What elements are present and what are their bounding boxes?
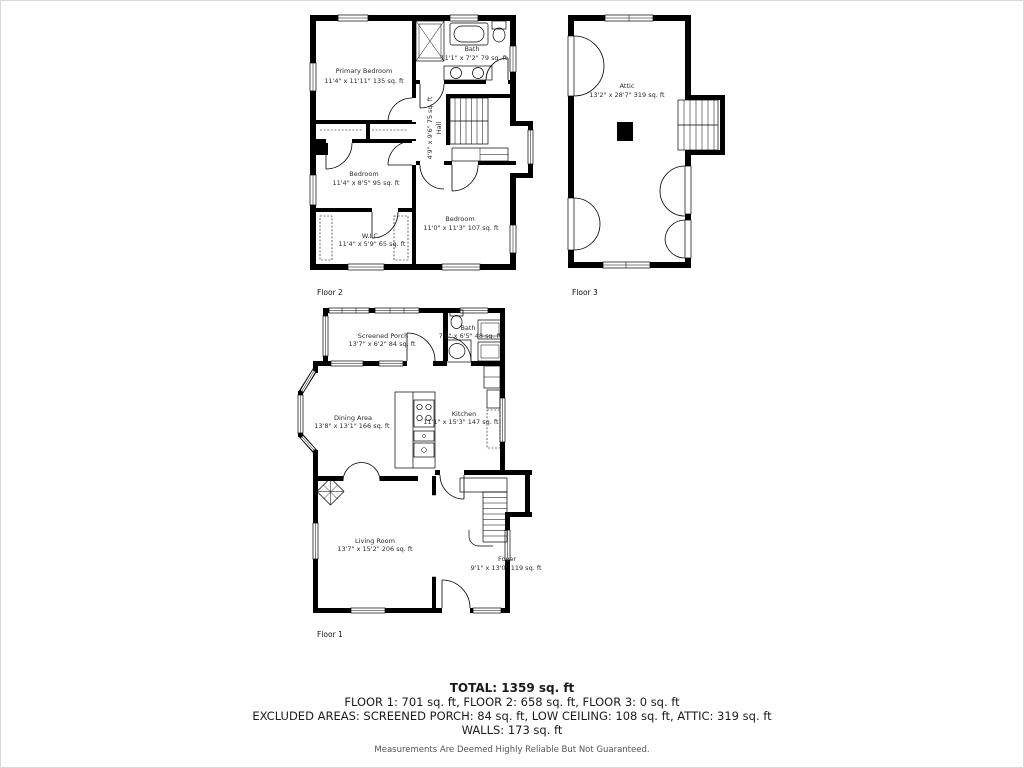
floor-2-plan: Primary Bedroom 11'4" x 11'11" 135 sq. f… [300,10,540,306]
room-label-f3-attic-dims: 13'2" x 28'7" 319 sq. ft [589,91,665,99]
room-label-f1-foyer-name: Foyer [498,555,516,563]
room-label-f2-bedroom-right-dims: 11'0" x 11'3" 107 sq. ft [423,224,499,232]
summary-block: TOTAL: 1359 sq. ft FLOOR 1: 701 sq. ft, … [0,681,1024,755]
floor3-stairs [678,100,718,150]
room-label-f1-porch-name: Screened Porch [358,332,408,340]
floor3-storage-doors [568,36,691,258]
room-label-f2-bedroom-left-name: Bedroom [349,170,378,178]
room-label-f2-primary-name: Primary Bedroom [336,67,393,75]
room-label-f1-kitchen-name: Kitchen [452,410,476,418]
room-label-f1-dining-name: Dining Area [334,414,372,422]
walls-area-text: WALLS: 173 sq. ft [0,723,1024,737]
floor-2-label: Floor 2 [317,288,343,297]
floor-1-plan: Screened Porch 13'7" x 6'2" 84 sq. ft Ba… [295,300,550,648]
room-label-f2-wic-dims: 11'4" x 5'9" 65 sq. ft [339,240,406,248]
total-area-text: TOTAL: 1359 sq. ft [0,681,1024,695]
floor3-chimney [617,122,633,141]
room-label-f1-living-dims: 13'7" x 15'2" 206 sq. ft [337,545,413,553]
disclaimer-text: Measurements Are Deemed Highly Reliable … [0,745,1024,755]
room-label-f1-porch-dims: 13'7" x 6'2" 84 sq. ft [349,340,416,348]
fireplace [317,478,344,505]
room-label-f3-attic-name: Attic [620,82,635,90]
room-label-f1-bath-dims: 7'5" x 6'5" 48 sq. ft [439,332,502,340]
floor-areas-text: FLOOR 1: 701 sq. ft, FLOOR 2: 658 sq. ft… [0,695,1024,709]
room-label-f1-kitchen-dims: 11'1" x 15'3" 147 sq. ft [423,418,499,426]
floor-3-plan: Attic 13'2" x 28'7" 319 sq. ft Floor 3 [560,10,740,306]
room-label-f2-bedroom-left-dims: 11'4" x 8'5" 95 sq. ft [333,179,400,187]
floor3-walls [568,15,725,268]
room-label-f1-foyer-dims: 9'1" x 13'0" 119 sq. ft [470,564,542,572]
room-label-f2-primary-dims: 11'4" x 11'11" 135 sq. ft [324,77,404,85]
room-label-f1-dining-dims: 13'8" x 13'1" 166 sq. ft [314,422,390,430]
floor-1-label: Floor 1 [317,630,343,639]
room-label-f2-wic-name: W.I.C. [362,232,380,240]
room-label-f2-hall-dims: 4'9" x 9'6" 75 sq. ft [426,96,434,159]
room-label-f2-hall-name: Hall [435,122,443,135]
floor3-windows [603,15,653,268]
room-label-f2-bath-dims: 11'1" x 7'2" 79 sq. ft [441,54,508,62]
room-label-f1-living-name: Living Room [355,537,395,545]
floorplan-page: Primary Bedroom 11'4" x 11'11" 135 sq. f… [0,0,1024,768]
room-label-f1-bath-name: Bath [460,324,475,332]
room-label-f2-bedroom-right-name: Bedroom [445,215,474,223]
floor2-stairs [450,98,508,161]
floor-3-label: Floor 3 [572,288,598,297]
room-label-f2-bath-name: Bath [464,45,479,53]
floor2-openings [326,80,508,212]
floor2-fixtures [416,21,506,80]
excluded-areas-text: EXCLUDED AREAS: SCREENED PORCH: 84 sq. f… [0,709,1024,723]
floor1-openings [343,361,471,613]
floor1-stairs [460,478,507,546]
